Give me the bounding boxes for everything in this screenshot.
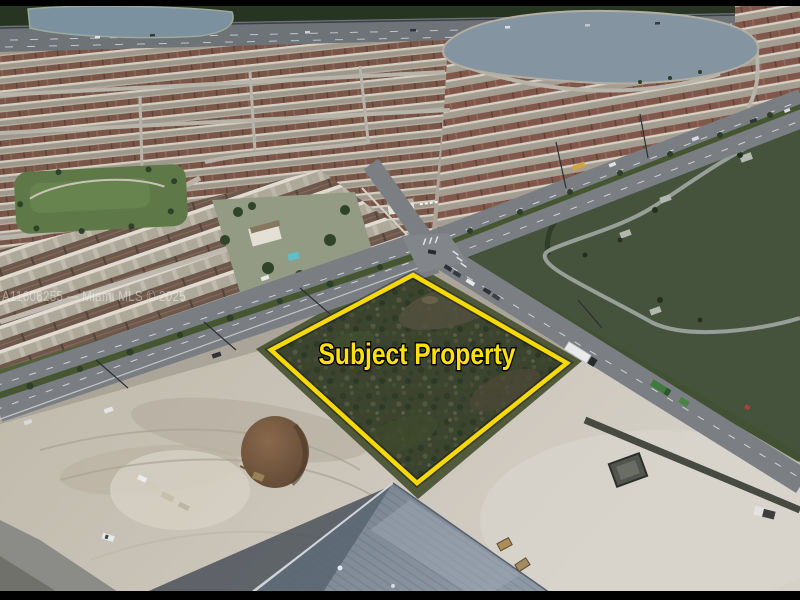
subject-property-label: Subject Property <box>319 338 516 371</box>
aerial-photo: A11608255 — Miami MLS © 2025 Subject Pro… <box>0 0 800 600</box>
letterbox-top <box>0 0 800 6</box>
letterbox-bottom <box>0 591 800 600</box>
mls-watermark: A11608255 — Miami MLS © 2025 <box>2 289 186 305</box>
